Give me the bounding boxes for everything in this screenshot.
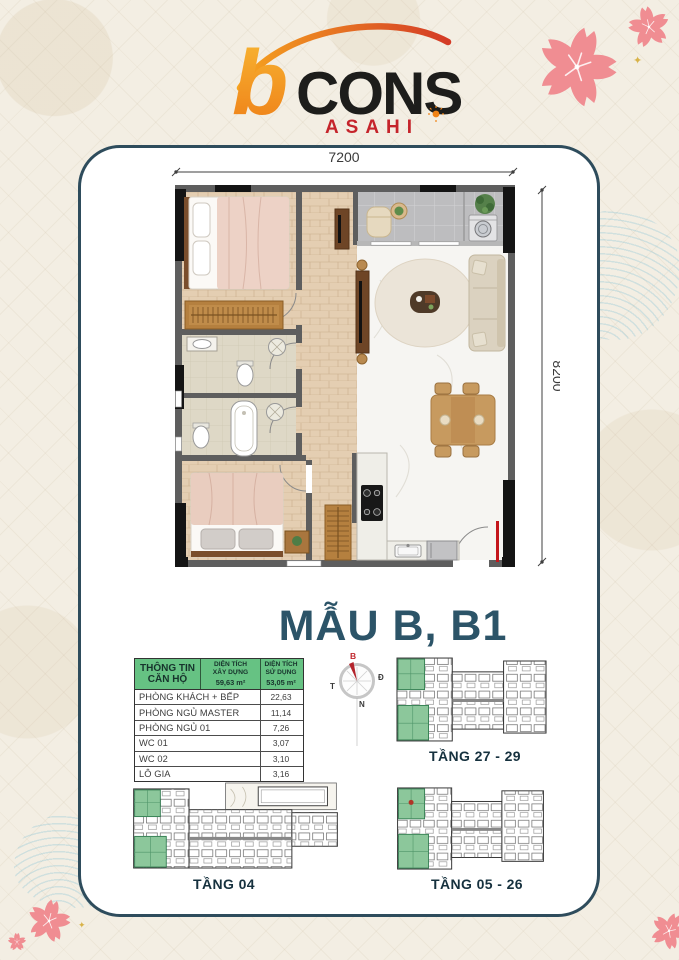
table-row: PHÒNG NGỦ 01 7,26 xyxy=(135,721,303,736)
table-row: WC 02 3,10 xyxy=(135,752,303,767)
plan-title: MẪU B, B1 xyxy=(279,602,508,651)
room-label: WC 01 xyxy=(135,736,261,750)
dimension-height: 8200 xyxy=(526,183,560,569)
unit-location-marker xyxy=(409,800,414,805)
living-room-furniture xyxy=(375,255,505,351)
sakura-flower-icon xyxy=(15,887,83,955)
floor-thumbnail-04 xyxy=(131,781,340,870)
dimension-width: 7200 xyxy=(168,148,520,180)
compass-north: B xyxy=(350,651,356,661)
sparkle-icon: ✦ xyxy=(78,920,86,931)
room-area: 22,63 xyxy=(261,690,301,704)
table-row: PHÒNG NGỦ MASTER 11,14 xyxy=(135,705,303,720)
room-area: 3,07 xyxy=(261,736,301,750)
flyer-page: ✦ ✦ b CONS ASAHI 7200 xyxy=(0,0,679,960)
brand-logo: b CONS ASAHI xyxy=(212,18,472,136)
built-line2: XÂY DỰNG xyxy=(213,669,248,677)
floor-label-27-29: TẦNG 27 - 29 xyxy=(429,748,521,764)
built-line1: DIỆN TÍCH xyxy=(214,661,247,669)
sparkle-icon: ✦ xyxy=(633,54,642,67)
table-header-usable: DIỆN TÍCH SỬ DỤNG 53,05 m² xyxy=(261,659,301,689)
master-bedroom-furniture xyxy=(184,197,289,329)
room-area: 7,26 xyxy=(261,721,301,735)
compass-east: Đ xyxy=(378,673,384,682)
room-label: PHÒNG NGỦ MASTER xyxy=(135,705,261,719)
sakura-flower-icon xyxy=(511,1,642,132)
logo-subbrand: ASAHI xyxy=(325,117,419,136)
room-label: LÔ GIA xyxy=(135,767,261,781)
room-area: 11,14 xyxy=(261,705,301,719)
dimension-width-label: 7200 xyxy=(328,149,359,165)
apartment-floor-plan xyxy=(175,185,515,567)
table-header-built: DIỆN TÍCH XÂY DỰNG 59,63 m² xyxy=(201,659,261,689)
table-header-title: THÔNG TIN CĂN HỘ xyxy=(135,659,201,689)
compass-west: T xyxy=(330,682,335,691)
table-header: THÔNG TIN CĂN HỘ DIỆN TÍCH XÂY DỰNG 59,6… xyxy=(135,659,303,690)
unit-info-table: THÔNG TIN CĂN HỘ DIỆN TÍCH XÂY DỰNG 59,6… xyxy=(134,658,304,782)
built-area-value: 59,63 m² xyxy=(216,678,246,687)
entry-marker xyxy=(496,521,499,562)
room-area: 3,16 xyxy=(261,767,301,781)
room-area: 3,10 xyxy=(261,752,301,766)
table-row: PHÒNG KHÁCH + BẾP 22,63 xyxy=(135,690,303,705)
sakura-flower-icon xyxy=(5,930,29,954)
usable-line1: DIỆN TÍCH xyxy=(265,661,298,669)
usable-area-value: 53,05 m² xyxy=(266,678,296,687)
room-label: PHÒNG KHÁCH + BẾP xyxy=(135,690,261,704)
dimension-height-label: 8200 xyxy=(550,360,560,391)
floor-label-04: TẦNG 04 xyxy=(193,876,255,892)
floor-thumbnail-27-29 xyxy=(395,656,548,743)
floor-thumbnail-05-26 xyxy=(393,786,548,871)
room-label: PHÒNG NGỦ 01 xyxy=(135,721,261,735)
logo-b: b xyxy=(232,32,288,134)
sakura-flower-icon xyxy=(637,899,679,960)
compass: B Đ T N xyxy=(326,646,390,750)
table-row: WC 01 3,07 xyxy=(135,736,303,751)
room-label: WC 02 xyxy=(135,752,261,766)
floor-label-05-26: TẦNG 05 - 26 xyxy=(431,876,523,892)
usable-line2: SỬ DỤNG xyxy=(265,669,296,677)
sakura-flower-icon xyxy=(617,0,679,59)
compass-south: N xyxy=(359,700,365,709)
table-row: LÔ GIA 3,16 xyxy=(135,767,303,781)
